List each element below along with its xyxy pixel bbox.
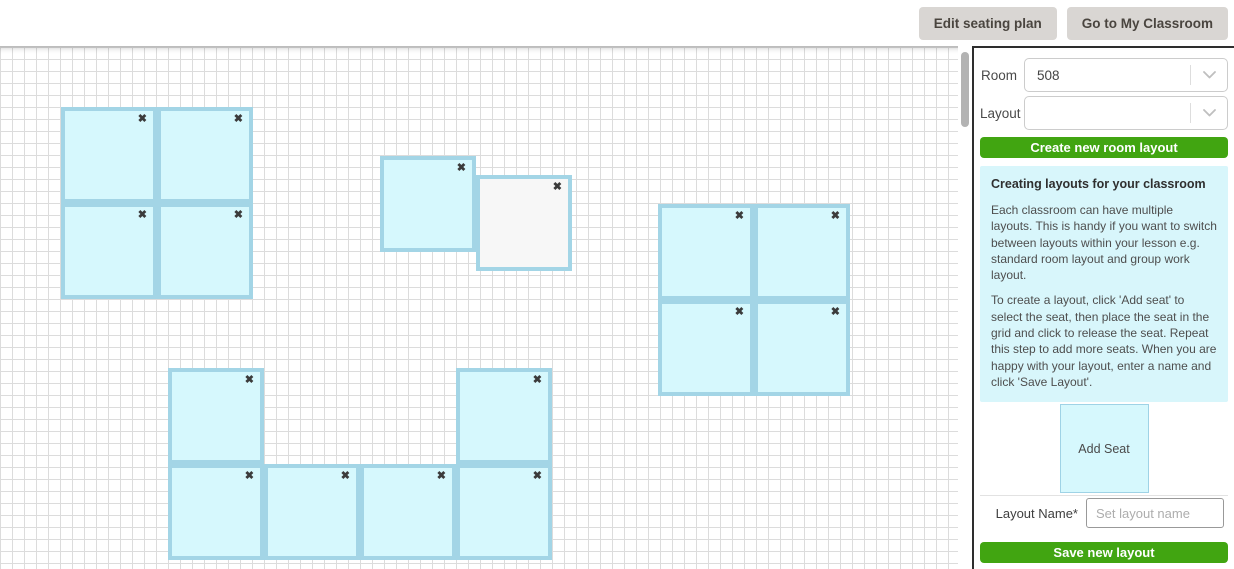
layout-help-box: Creating layouts for your classroom Each… [980,166,1228,402]
seat[interactable]: ✖ [380,156,476,252]
layout-name-label: Layout Name* [996,506,1086,521]
help-box-title: Creating layouts for your classroom [991,176,1217,193]
add-seat-label: Add Seat [1078,442,1129,456]
create-new-room-layout-button[interactable]: Create new room layout [980,137,1228,158]
room-label: Room [980,68,1024,83]
seat[interactable]: ✖ [456,464,552,560]
help-box-paragraph: To create a layout, click 'Add seat' to … [991,292,1217,390]
seat[interactable]: ✖ [658,204,754,300]
remove-seat-icon[interactable]: ✖ [245,471,254,482]
seat[interactable]: ✖ [476,175,572,271]
remove-seat-icon[interactable]: ✖ [341,471,350,482]
room-select[interactable]: 508 [1024,58,1228,92]
edit-seating-plan-button[interactable]: Edit seating plan [919,7,1057,40]
room-field-row: Room 508 [980,58,1228,92]
remove-seat-icon[interactable]: ✖ [735,307,744,318]
chevron-down-icon [1191,109,1227,117]
remove-seat-icon[interactable]: ✖ [457,163,466,174]
seat[interactable]: ✖ [264,464,360,560]
seat[interactable]: ✖ [360,464,456,560]
top-bar: Edit seating plan Go to My Classroom [0,0,1234,46]
layout-name-input[interactable] [1086,498,1224,528]
add-seat-section: Add Seat [980,402,1228,495]
remove-seat-icon[interactable]: ✖ [138,114,147,125]
seat[interactable]: ✖ [754,204,850,300]
seat[interactable]: ✖ [157,107,253,203]
chevron-down-icon [1191,71,1227,79]
remove-seat-icon[interactable]: ✖ [553,182,562,193]
layout-name-row: Layout Name* [980,496,1228,531]
seat[interactable]: ✖ [157,203,253,299]
canvas-scrollbar-thumb[interactable] [961,52,969,127]
remove-seat-icon[interactable]: ✖ [234,210,243,221]
layout-field-row: Layout [980,96,1228,130]
remove-seat-icon[interactable]: ✖ [533,471,542,482]
seat[interactable]: ✖ [168,368,264,464]
seat[interactable]: ✖ [61,107,157,203]
canvas-scrollbar-track[interactable] [958,46,972,569]
seat[interactable]: ✖ [61,203,157,299]
save-new-layout-button[interactable]: Save new layout [980,542,1228,563]
remove-seat-icon[interactable]: ✖ [437,471,446,482]
seating-canvas[interactable]: ✖✖✖✖✖✖✖✖✖✖✖✖✖✖✖✖ [0,46,958,569]
seat[interactable]: ✖ [168,464,264,560]
remove-seat-icon[interactable]: ✖ [831,307,840,318]
help-box-paragraph: Each classroom can have multiple layouts… [991,202,1217,284]
remove-seat-icon[interactable]: ✖ [735,211,744,222]
seat[interactable]: ✖ [456,368,552,464]
add-seat-button[interactable]: Add Seat [1060,404,1149,493]
seat[interactable]: ✖ [754,300,850,396]
remove-seat-icon[interactable]: ✖ [831,211,840,222]
layout-select[interactable] [1024,96,1228,130]
layout-sidebar: Room 508 Layout Create new room layout C… [972,46,1234,569]
remove-seat-icon[interactable]: ✖ [245,375,254,386]
room-select-value: 508 [1037,68,1190,83]
seat[interactable]: ✖ [658,300,754,396]
remove-seat-icon[interactable]: ✖ [533,375,542,386]
go-to-my-classroom-button[interactable]: Go to My Classroom [1067,7,1228,40]
remove-seat-icon[interactable]: ✖ [138,210,147,221]
remove-seat-icon[interactable]: ✖ [234,114,243,125]
layout-label: Layout [980,106,1024,121]
